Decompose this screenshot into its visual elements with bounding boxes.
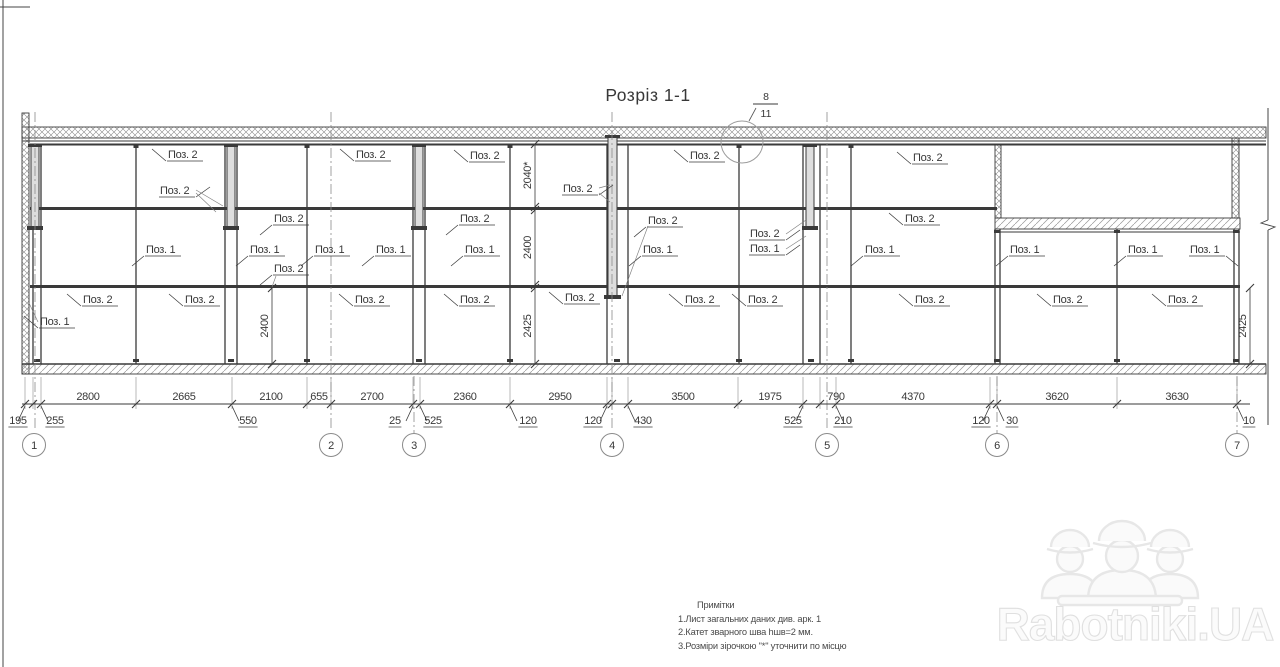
dim-label: 1975 — [758, 391, 781, 403]
dim-label: 4370 — [901, 391, 924, 403]
position-label: Поз. 1 — [376, 244, 406, 256]
post-cap-plate — [802, 226, 818, 230]
position-label: Поз. 2 — [565, 292, 595, 304]
position-label: Поз. 2 — [905, 213, 935, 225]
sub-dim-label: 120 — [519, 415, 537, 427]
position-label: Поз. 1 — [1128, 244, 1158, 256]
label-leader — [851, 256, 863, 266]
column-foot — [507, 359, 513, 362]
dim-label: 790 — [827, 391, 845, 403]
dim-label: 2100 — [259, 391, 282, 403]
watermark-text: Rabotniki.UA — [997, 598, 1274, 650]
vertical-dim-label: 2400 — [522, 236, 534, 259]
sub-dim-flag — [628, 406, 635, 421]
label-leader — [169, 294, 183, 306]
vertical-dim-label: 2400 — [259, 314, 271, 337]
position-label: Поз. 2 — [355, 294, 385, 306]
steel-post — [608, 137, 617, 297]
label-leader — [446, 225, 458, 235]
position-label: Поз. 1 — [750, 243, 780, 255]
callout-leader-line — [749, 108, 756, 121]
steel-post — [806, 146, 814, 228]
position-label: Поз. 1 — [146, 244, 176, 256]
axis-number: 2 — [328, 440, 334, 452]
position-label: Поз. 1 — [643, 244, 673, 256]
column-top-connector — [1114, 230, 1120, 233]
break-symbol — [1261, 220, 1275, 230]
label-leader — [339, 294, 353, 306]
sub-dim-label: 550 — [239, 415, 257, 427]
label-leader — [889, 213, 903, 225]
worker-head — [1057, 546, 1083, 572]
label-leader — [897, 152, 911, 164]
label-leader — [996, 256, 1008, 266]
dim-label: 2360 — [453, 391, 476, 403]
position-label: Поз. 2 — [748, 294, 778, 306]
sub-dim-flag — [41, 406, 48, 421]
label-leader — [67, 294, 81, 306]
column-top-connector — [305, 144, 310, 148]
position-label: Поз. 2 — [185, 294, 215, 306]
sub-dim-label: 210 — [834, 415, 852, 427]
sub-dim-flag — [997, 406, 1004, 421]
worker-head — [1157, 546, 1183, 572]
label-leader — [260, 275, 272, 285]
position-label: Поз. 2 — [563, 183, 593, 195]
position-label: Поз. 2 — [1053, 294, 1083, 306]
notes-heading: Примітки — [697, 600, 734, 610]
position-label: Поз. 1 — [315, 244, 345, 256]
sub-dim-label: 30 — [1006, 415, 1018, 427]
axis-number: 4 — [609, 440, 615, 452]
column-foot — [1114, 359, 1120, 362]
label-leader — [1037, 294, 1051, 306]
column-foot — [808, 359, 814, 362]
label-leader — [236, 256, 248, 266]
note-item: 1.Лист загальних даних див. арк. 1 — [678, 614, 821, 624]
label-leader — [1114, 256, 1126, 266]
column-foot — [133, 359, 139, 362]
drawing-sheet: 2800266521006552700236029503500197579043… — [0, 0, 1280, 667]
axis-number: 5 — [824, 440, 830, 452]
column-top-connector — [508, 144, 513, 148]
position-label: Поз. 2 — [160, 185, 190, 197]
position-label: Поз. 2 — [648, 215, 678, 227]
position-label: Поз. 2 — [915, 294, 945, 306]
position-label: Поз. 1 — [1190, 244, 1220, 256]
callout-number-bottom: 11 — [761, 108, 772, 120]
label-leader — [444, 294, 458, 306]
note-item: 2.Катет зварного шва hшв=2 мм. — [678, 627, 813, 637]
hatched-floor-band — [22, 364, 1266, 374]
column-foot — [416, 359, 422, 362]
dim-label: 655 — [310, 391, 328, 403]
steel-post — [415, 146, 423, 228]
sub-dim-label: 120 — [584, 415, 602, 427]
label-leader — [152, 149, 166, 161]
axis-number: 3 — [411, 440, 417, 452]
column-top-connector — [849, 144, 854, 148]
position-label: Поз. 2 — [356, 149, 386, 161]
dim-label: 3500 — [671, 391, 694, 403]
dim-label: 2950 — [548, 391, 571, 403]
watermark — [1042, 521, 1198, 605]
structure-layer: 2800266521006552700236029503500197579043… — [8, 112, 1266, 457]
vertical-dim-label: 2425 — [1237, 314, 1249, 337]
position-label: Поз. 1 — [250, 244, 280, 256]
dim-label: 3620 — [1045, 391, 1068, 403]
axis-number: 1 — [31, 440, 37, 452]
label-leader — [132, 256, 144, 266]
position-label: Поз. 2 — [470, 150, 500, 162]
post-cap-plate — [803, 144, 817, 147]
position-label: Поз. 2 — [913, 152, 943, 164]
vertical-dim-label: 2040* — [522, 161, 534, 189]
notes-block: Примітки 1.Лист загальних даних див. арк… — [678, 600, 847, 651]
drawing-title: Розріз 1-1 — [605, 85, 690, 105]
column-foot — [1233, 359, 1239, 362]
hatched-floor-band — [995, 218, 1240, 229]
leader-line — [196, 190, 223, 206]
section-drawing: 2800266521006552700236029503500197579043… — [0, 0, 1280, 667]
post-cap-plate — [604, 295, 621, 299]
label-leader — [196, 187, 210, 197]
position-label: Поз. 1 — [40, 316, 70, 328]
column-foot — [304, 359, 310, 362]
beam-lower — [30, 285, 1240, 288]
column-top-connector — [1233, 230, 1239, 233]
sub-dim-flag — [510, 406, 517, 421]
position-label: Поз. 1 — [865, 244, 895, 256]
position-label: Поз. 2 — [274, 213, 304, 225]
label-leader — [362, 256, 374, 266]
label-leader — [786, 230, 800, 240]
hatched-band — [1232, 138, 1239, 218]
position-label: Поз. 2 — [685, 294, 715, 306]
label-leader — [340, 149, 354, 161]
beam-upper — [30, 207, 997, 210]
post-cap-plate — [223, 226, 239, 230]
helmet-icon — [1099, 521, 1145, 541]
position-label: Поз. 1 — [1010, 244, 1040, 256]
sub-dim-flag — [1237, 406, 1244, 421]
column-foot — [994, 359, 1000, 362]
label-leader — [669, 294, 683, 306]
dim-label: 3630 — [1165, 391, 1188, 403]
vertical-dim-label: 2425 — [522, 314, 534, 337]
label-leader — [549, 292, 563, 304]
dim-label: 2800 — [76, 391, 99, 403]
sub-dim-flag — [232, 406, 239, 421]
sub-dim-label: 120 — [972, 415, 990, 427]
position-label: Поз. 2 — [1168, 294, 1198, 306]
sub-dim-label: 525 — [784, 415, 802, 427]
note-item: 3.Розміри зірочкою "*" уточнити по місцю — [678, 641, 847, 651]
position-label: Поз. 2 — [690, 150, 720, 162]
callout-number-top: 8 — [763, 91, 769, 103]
helmet-icon — [1051, 530, 1089, 547]
column-top-connector — [134, 144, 139, 148]
column-top-connector — [994, 230, 1000, 233]
steel-post — [227, 146, 235, 228]
hatched-band — [22, 127, 1266, 138]
dim-label: 2700 — [360, 391, 383, 403]
label-leader — [786, 245, 800, 255]
helmet-icon — [1151, 530, 1189, 547]
axis-number: 7 — [1234, 440, 1240, 452]
column-foot — [614, 359, 620, 362]
post-cap-plate — [412, 144, 426, 147]
column-foot — [736, 359, 742, 362]
sub-dim-label: 10 — [1243, 415, 1255, 427]
label-leader — [899, 294, 913, 306]
dim-label: 2665 — [172, 391, 195, 403]
position-label: Поз. 2 — [168, 149, 198, 161]
post-cap-plate — [411, 226, 427, 230]
column-foot — [848, 359, 854, 362]
label-leader — [454, 150, 468, 162]
label-leader — [451, 256, 463, 266]
label-leader — [260, 225, 272, 235]
sub-dim-label: 255 — [46, 415, 64, 427]
position-label: Поз. 2 — [274, 263, 304, 275]
label-leader — [1226, 256, 1238, 266]
position-label: Поз. 2 — [460, 213, 490, 225]
worker-head — [1106, 540, 1138, 572]
position-label: Поз. 1 — [465, 244, 495, 256]
hatched-band — [22, 113, 29, 374]
sub-dim-label: 25 — [389, 415, 401, 427]
position-label: Поз. 2 — [750, 228, 780, 240]
post-cap-plate — [224, 144, 238, 147]
label-leader — [674, 150, 688, 162]
axis-number: 6 — [994, 440, 1000, 452]
label-leader — [1152, 294, 1166, 306]
column-foot — [228, 359, 234, 362]
sub-dim-label: 430 — [634, 415, 652, 427]
position-label: Поз. 2 — [83, 294, 113, 306]
column-top-connector — [737, 144, 742, 148]
post-cap-plate — [605, 135, 620, 138]
position-label: Поз. 2 — [460, 294, 490, 306]
